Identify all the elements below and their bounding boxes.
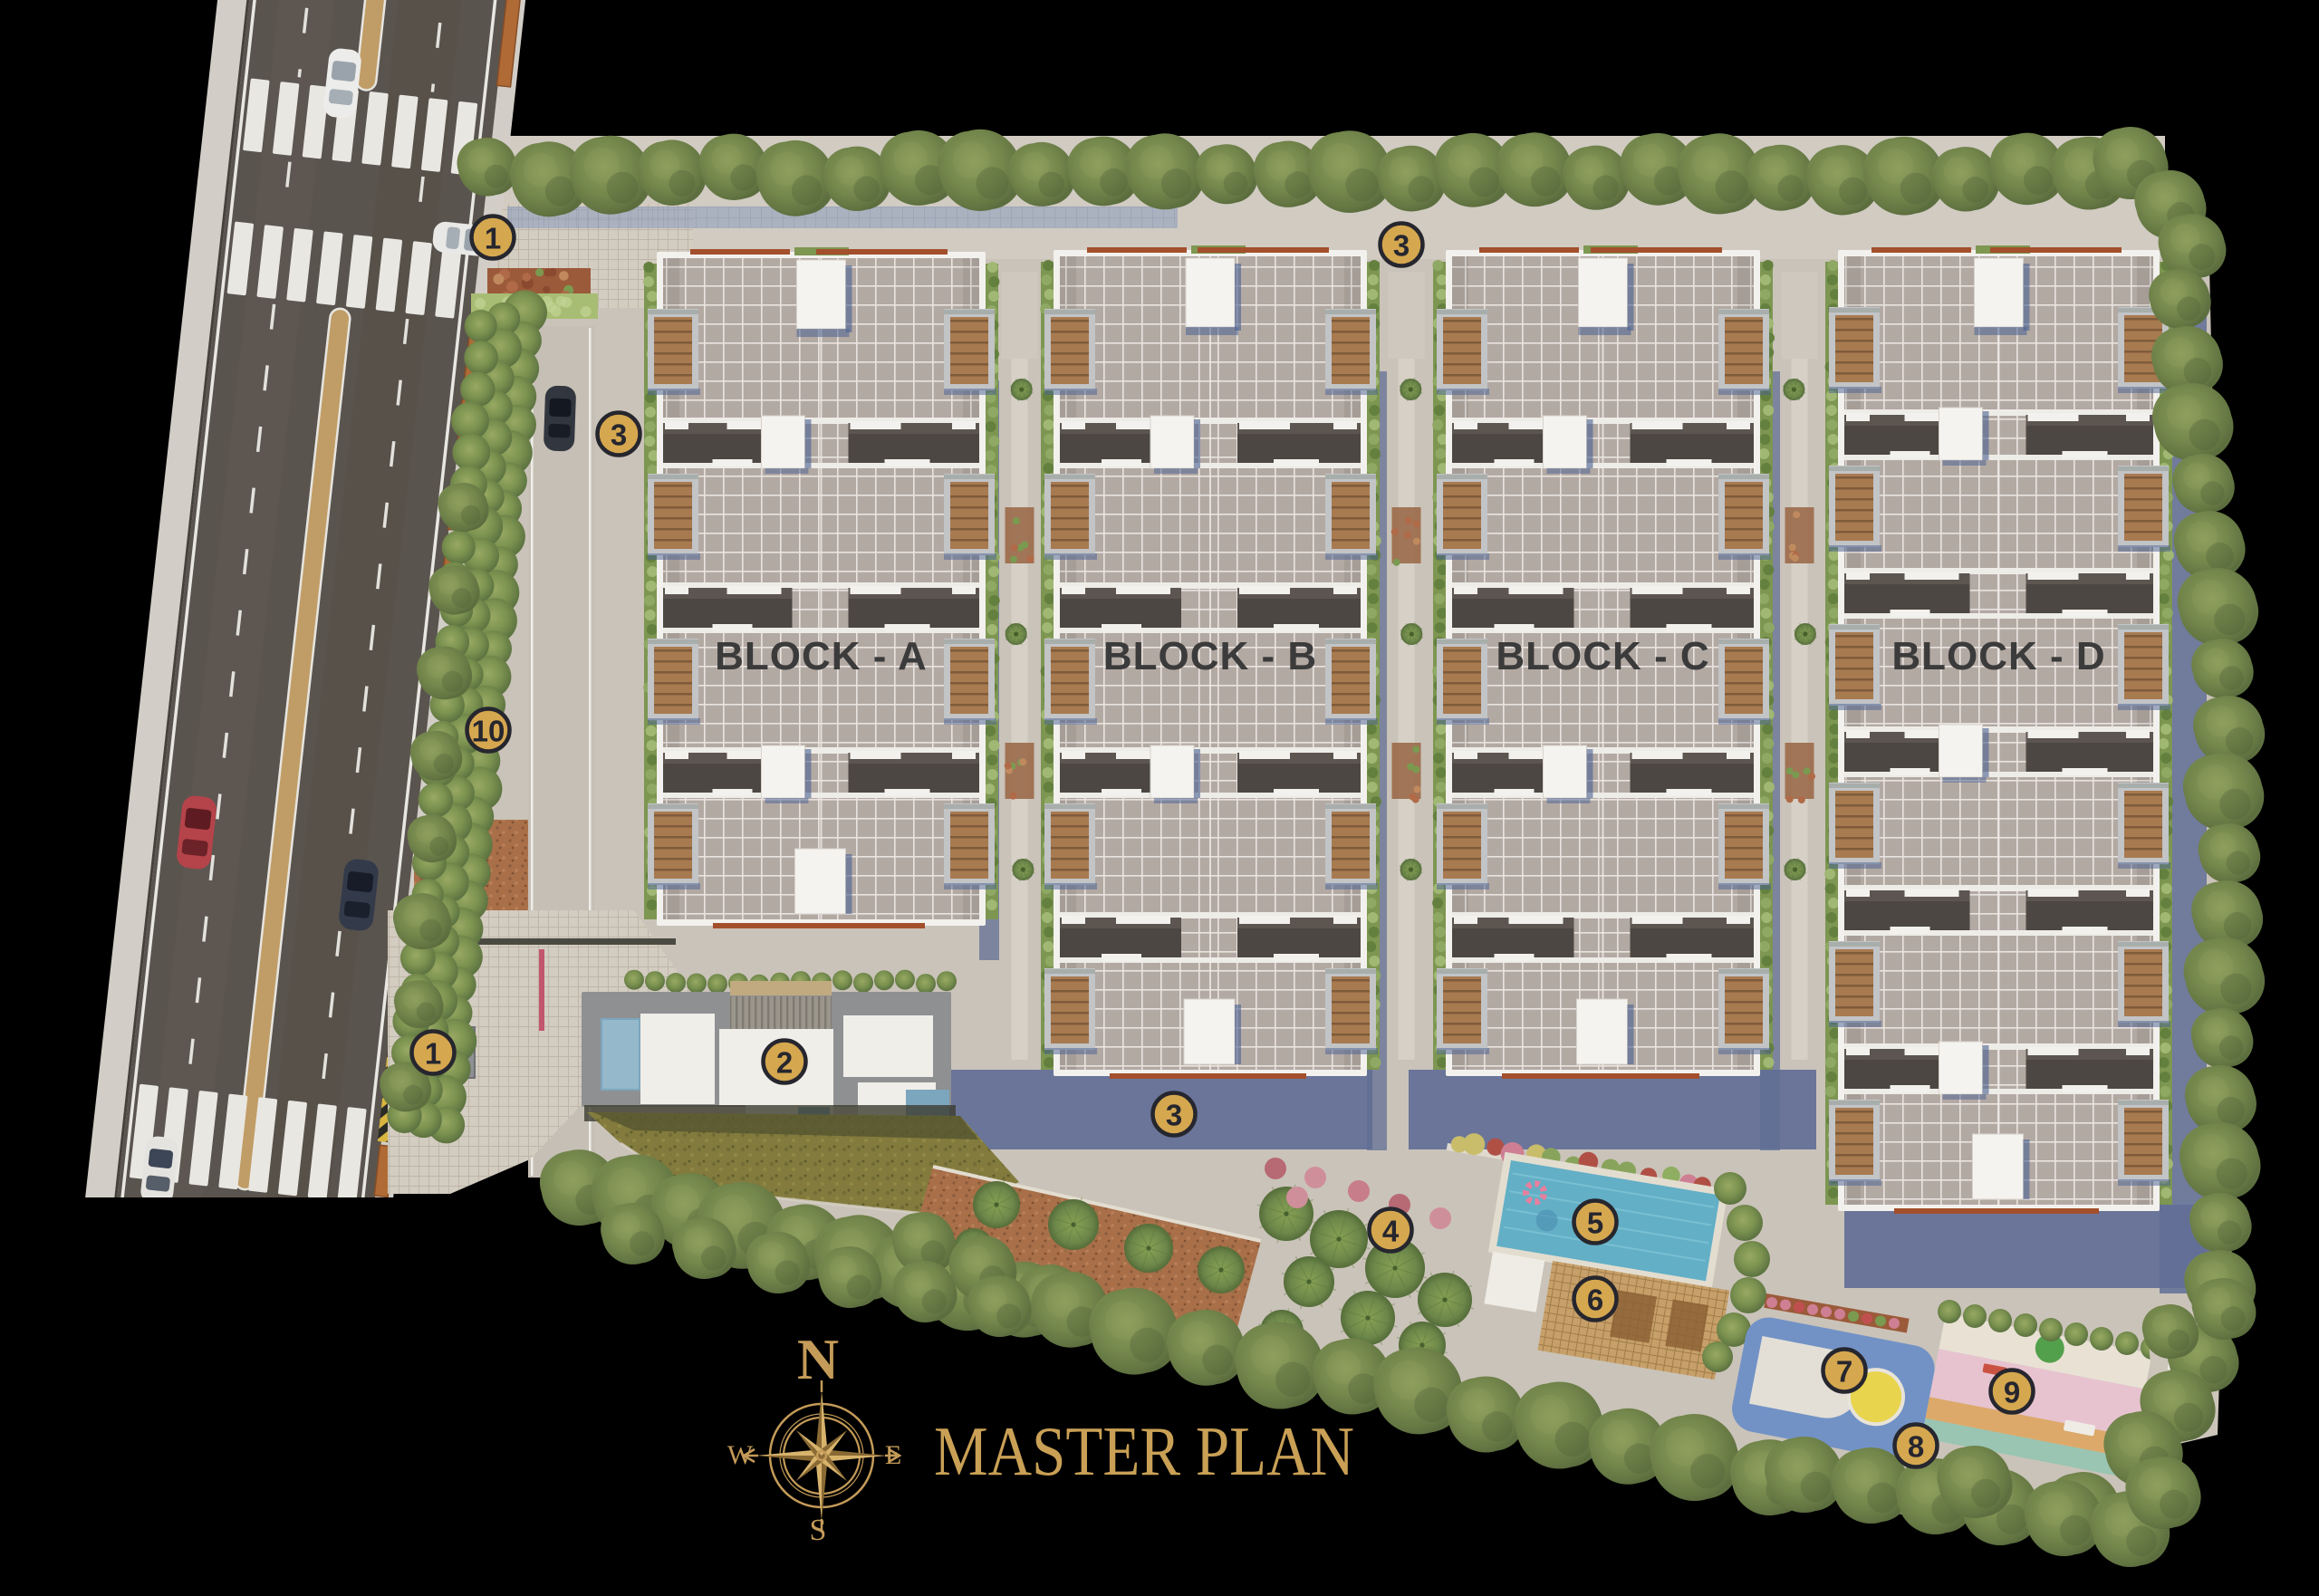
svg-text:4: 4: [1382, 1215, 1400, 1248]
svg-text:BLOCK - D: BLOCK - D: [1891, 634, 2105, 678]
svg-text:S: S: [810, 1514, 827, 1547]
svg-text:BLOCK - B: BLOCK - B: [1103, 634, 1317, 678]
svg-text:6: 6: [1587, 1284, 1603, 1317]
svg-text:E: E: [885, 1440, 901, 1470]
svg-text:5: 5: [1587, 1207, 1603, 1240]
svg-text:BLOCK - A: BLOCK - A: [715, 634, 928, 678]
svg-text:7: 7: [1836, 1355, 1852, 1389]
svg-text:W: W: [727, 1440, 754, 1470]
svg-text:MASTER PLAN: MASTER PLAN: [934, 1412, 1354, 1490]
svg-text:BLOCK - C: BLOCK - C: [1496, 634, 1709, 678]
svg-text:8: 8: [1908, 1430, 1924, 1464]
svg-text:1: 1: [425, 1037, 441, 1071]
svg-text:3: 3: [611, 418, 627, 452]
svg-text:1: 1: [485, 222, 501, 255]
svg-text:N: N: [797, 1327, 839, 1391]
svg-text:10: 10: [472, 715, 505, 748]
svg-text:9: 9: [2004, 1376, 2020, 1409]
svg-text:3: 3: [1166, 1099, 1182, 1132]
svg-text:3: 3: [1393, 229, 1410, 263]
svg-text:2: 2: [776, 1046, 793, 1080]
